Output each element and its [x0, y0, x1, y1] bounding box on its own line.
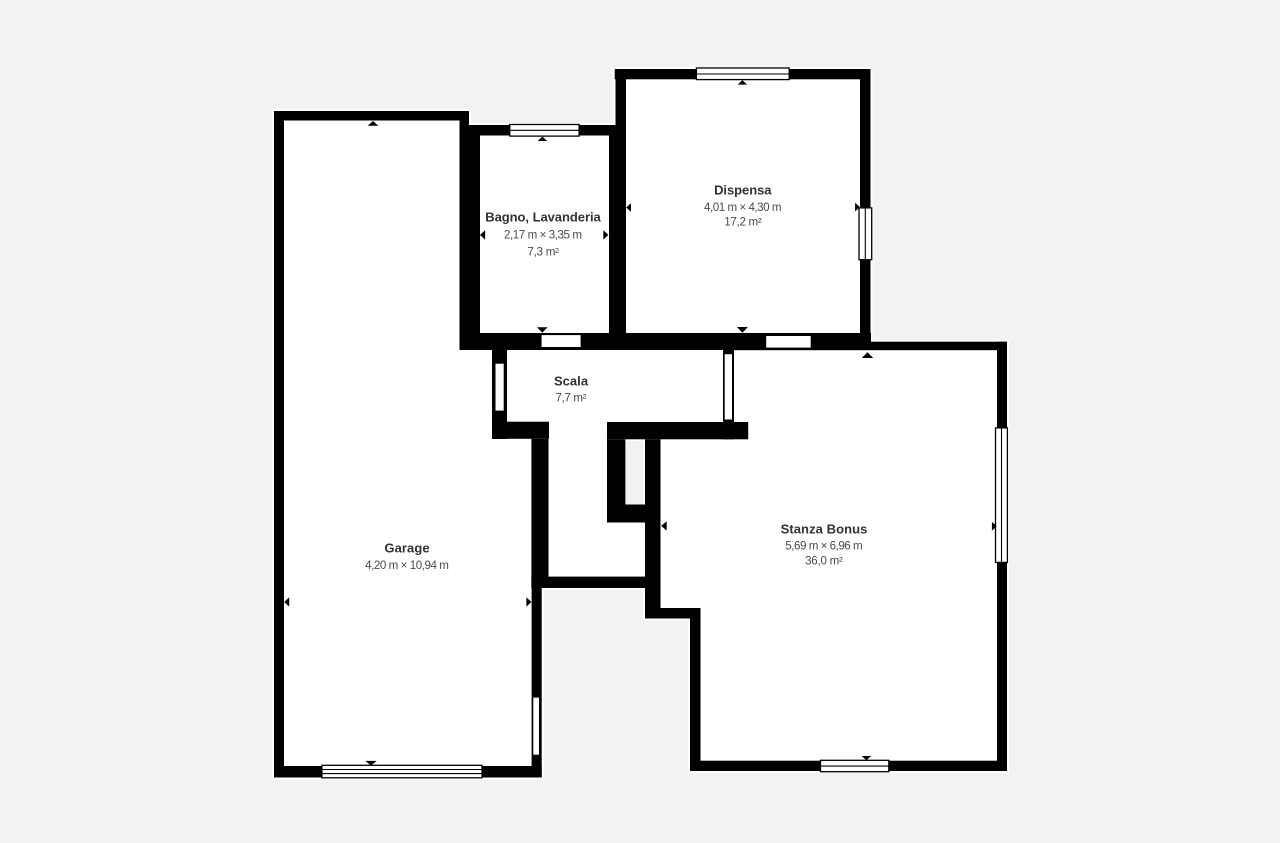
svg-text:Dispensa: Dispensa [714, 183, 772, 198]
svg-text:Bagno, Lavanderia: Bagno, Lavanderia [485, 209, 601, 224]
svg-text:Scala: Scala [554, 373, 589, 388]
svg-text:4,20 m × 10,94 m: 4,20 m × 10,94 m [365, 559, 449, 572]
svg-text:4,01 m × 4,30 m: 4,01 m × 4,30 m [704, 201, 782, 214]
svg-text:7,7 m²: 7,7 m² [556, 392, 587, 405]
svg-text:17,2 m²: 17,2 m² [724, 216, 762, 229]
svg-text:2,17 m × 3,35 m: 2,17 m × 3,35 m [504, 228, 582, 241]
svg-text:Stanza Bonus: Stanza Bonus [781, 521, 868, 536]
svg-text:5,69 m × 6,96 m: 5,69 m × 6,96 m [785, 539, 862, 552]
svg-text:Garage: Garage [384, 540, 429, 555]
svg-text:7,3 m²: 7,3 m² [527, 245, 559, 258]
svg-text:36,0 m²: 36,0 m² [805, 554, 843, 567]
